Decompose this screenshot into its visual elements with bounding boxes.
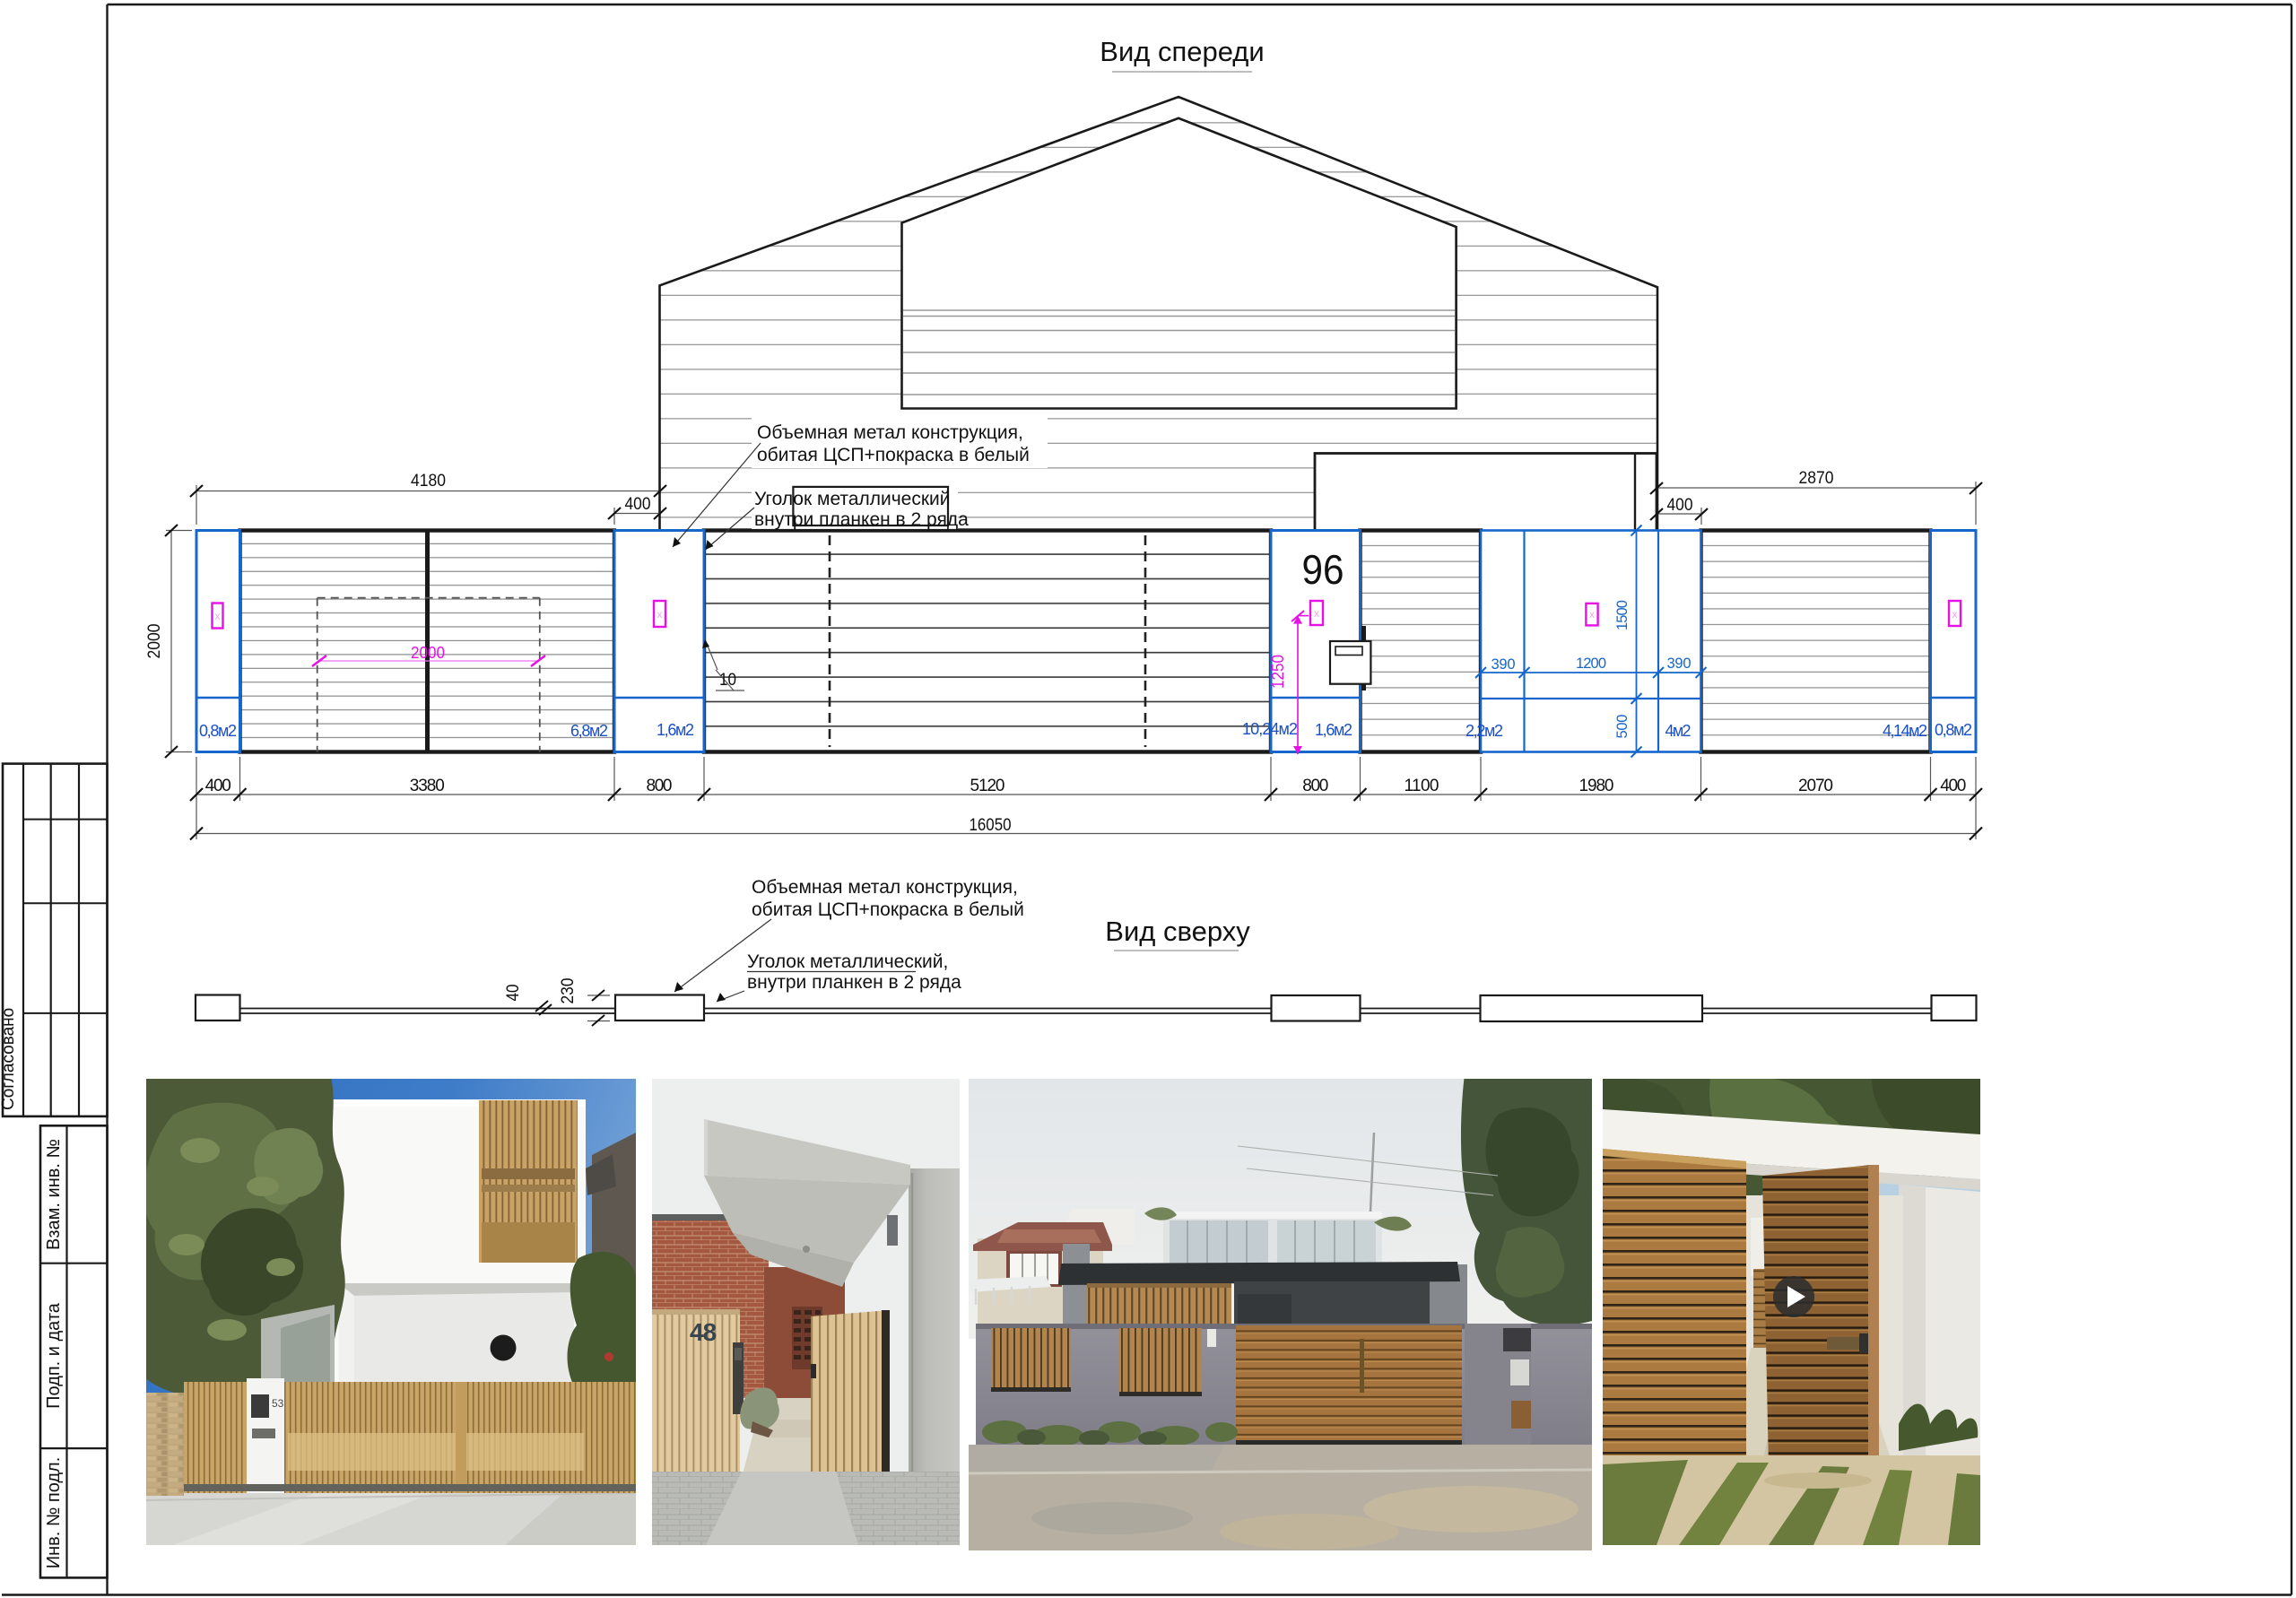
svg-text:Объемная метал конструкция,: Объемная метал конструкция,: [752, 877, 1018, 898]
svg-text:3380: 3380: [410, 777, 445, 795]
svg-text:390: 390: [1667, 656, 1692, 672]
svg-text:Инв. № подл.: Инв. № подл.: [44, 1457, 64, 1569]
svg-text:2000: 2000: [145, 624, 164, 659]
svg-text:400: 400: [205, 777, 231, 795]
svg-text:x: x: [657, 608, 663, 621]
svg-text:1,6м2: 1,6м2: [657, 721, 694, 739]
svg-text:1980: 1980: [1579, 777, 1614, 795]
svg-text:40: 40: [504, 985, 523, 1002]
svg-text:800: 800: [1302, 777, 1328, 795]
svg-text:400: 400: [1940, 777, 1966, 795]
svg-text:2870: 2870: [1799, 469, 1834, 488]
svg-text:48: 48: [690, 1318, 717, 1346]
svg-text:2000: 2000: [411, 644, 445, 662]
svg-text:x: x: [1589, 608, 1595, 621]
svg-text:96: 96: [1302, 546, 1344, 593]
svg-text:Вид сверху: Вид сверху: [1105, 916, 1250, 947]
svg-text:0,8м2: 0,8м2: [1935, 721, 1972, 739]
svg-text:0,8м2: 0,8м2: [199, 722, 237, 740]
svg-text:внутри планкен в 2 ряда: внутри планкен в 2 ряда: [747, 972, 961, 993]
svg-text:6,8м2: 6,8м2: [570, 722, 608, 740]
svg-text:обитая ЦСП+покраска в белый: обитая ЦСП+покраска в белый: [752, 899, 1024, 920]
svg-text:1500: 1500: [1614, 600, 1631, 630]
svg-text:Уголок металлический,: Уголок металлический,: [747, 951, 948, 972]
svg-text:x: x: [1952, 608, 1958, 621]
svg-text:Вид спереди: Вид спереди: [1100, 36, 1264, 67]
svg-text:4180: 4180: [411, 472, 446, 491]
svg-text:800: 800: [647, 777, 673, 795]
svg-text:Взам. инв. №: Взам. инв. №: [44, 1139, 64, 1250]
svg-text:400: 400: [1667, 496, 1693, 515]
svg-text:400: 400: [625, 495, 651, 514]
svg-text:4,14м2: 4,14м2: [1883, 722, 1927, 740]
svg-text:x: x: [1314, 607, 1319, 620]
svg-text:230: 230: [559, 978, 578, 1004]
svg-text:390: 390: [1492, 656, 1516, 673]
svg-text:16050: 16050: [970, 816, 1012, 835]
svg-text:53: 53: [272, 1397, 284, 1410]
svg-text:10,24м2: 10,24м2: [1242, 720, 1298, 738]
svg-text:1200: 1200: [1576, 656, 1606, 672]
svg-text:Подп. и дата: Подп. и дата: [44, 1302, 64, 1409]
svg-text:1,6м2: 1,6м2: [1315, 721, 1352, 739]
svg-text:5120: 5120: [970, 777, 1005, 795]
svg-text:Объемная метал конструкция,: Объемная метал конструкция,: [757, 422, 1023, 443]
svg-text:2070: 2070: [1798, 777, 1833, 795]
svg-text:обитая ЦСП+покраска в белый: обитая ЦСП+покраска в белый: [757, 445, 1030, 465]
svg-text:x: x: [215, 610, 221, 622]
svg-text:4м2: 4м2: [1665, 722, 1692, 740]
svg-text:10: 10: [719, 671, 736, 690]
svg-text:1250: 1250: [1269, 655, 1287, 689]
svg-text:внутри планкен в 2 ряда: внутри планкен в 2 ряда: [754, 509, 969, 530]
svg-text:500: 500: [1614, 715, 1631, 739]
svg-text:Уголок металлический: Уголок металлический: [754, 489, 951, 509]
svg-text:2,2м2: 2,2м2: [1465, 722, 1503, 740]
svg-text:Согласовано: Согласовано: [0, 1008, 18, 1110]
svg-text:1100: 1100: [1405, 777, 1439, 795]
